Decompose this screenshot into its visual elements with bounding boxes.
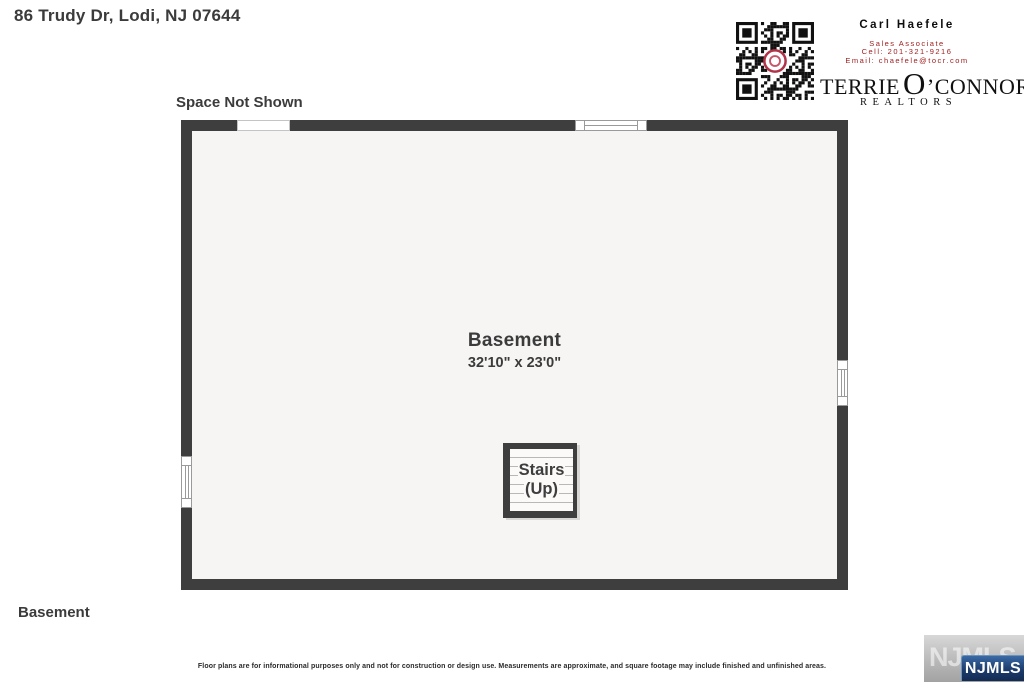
njmls-logo: NJMLS [961, 655, 1024, 681]
room-name: Basement [192, 330, 837, 352]
qr-code-icon [736, 22, 814, 100]
stairs-label-line2: (Up) [524, 480, 559, 499]
qr-center-logo-icon [764, 50, 785, 71]
agent-card: Carl Haefele Sales Associate Cell: 201-3… [822, 19, 992, 65]
brokerage-name: TERRIEO’CONNOR [820, 71, 992, 100]
disclaimer-text: Floor plans are for informational purpos… [0, 663, 1024, 670]
property-address: 86 Trudy Dr, Lodi, NJ 07644 [14, 6, 241, 26]
floorplan-page: 86 Trudy Dr, Lodi, NJ 07644 Carl Haefele… [0, 0, 1024, 682]
room-dimensions: 32'10" x 23'0" [192, 355, 837, 371]
agent-name: Carl Haefele [822, 19, 992, 31]
njmls-logo-text: NJMLS [965, 660, 1021, 678]
wall-opening [237, 120, 290, 131]
brokerage-logo-o: O [903, 66, 926, 101]
stairs-box: Stairs (Up) [503, 443, 577, 518]
room-label: Basement 32'10" x 23'0" [192, 330, 837, 371]
window-icon [181, 456, 192, 508]
brokerage-logo: TERRIEO’CONNOR REALTORS [820, 71, 992, 108]
floor-level-label: Basement [18, 604, 90, 621]
space-not-shown-label: Space Not Shown [176, 94, 303, 111]
floorplan-canvas: Basement 32'10" x 23'0" Stairs (Up) [181, 120, 848, 590]
window-icon [837, 360, 848, 406]
agent-email: Email: chaefele@tocr.com [822, 57, 992, 65]
window-icon [575, 120, 647, 131]
stairs-label-line1: Stairs [518, 461, 566, 480]
